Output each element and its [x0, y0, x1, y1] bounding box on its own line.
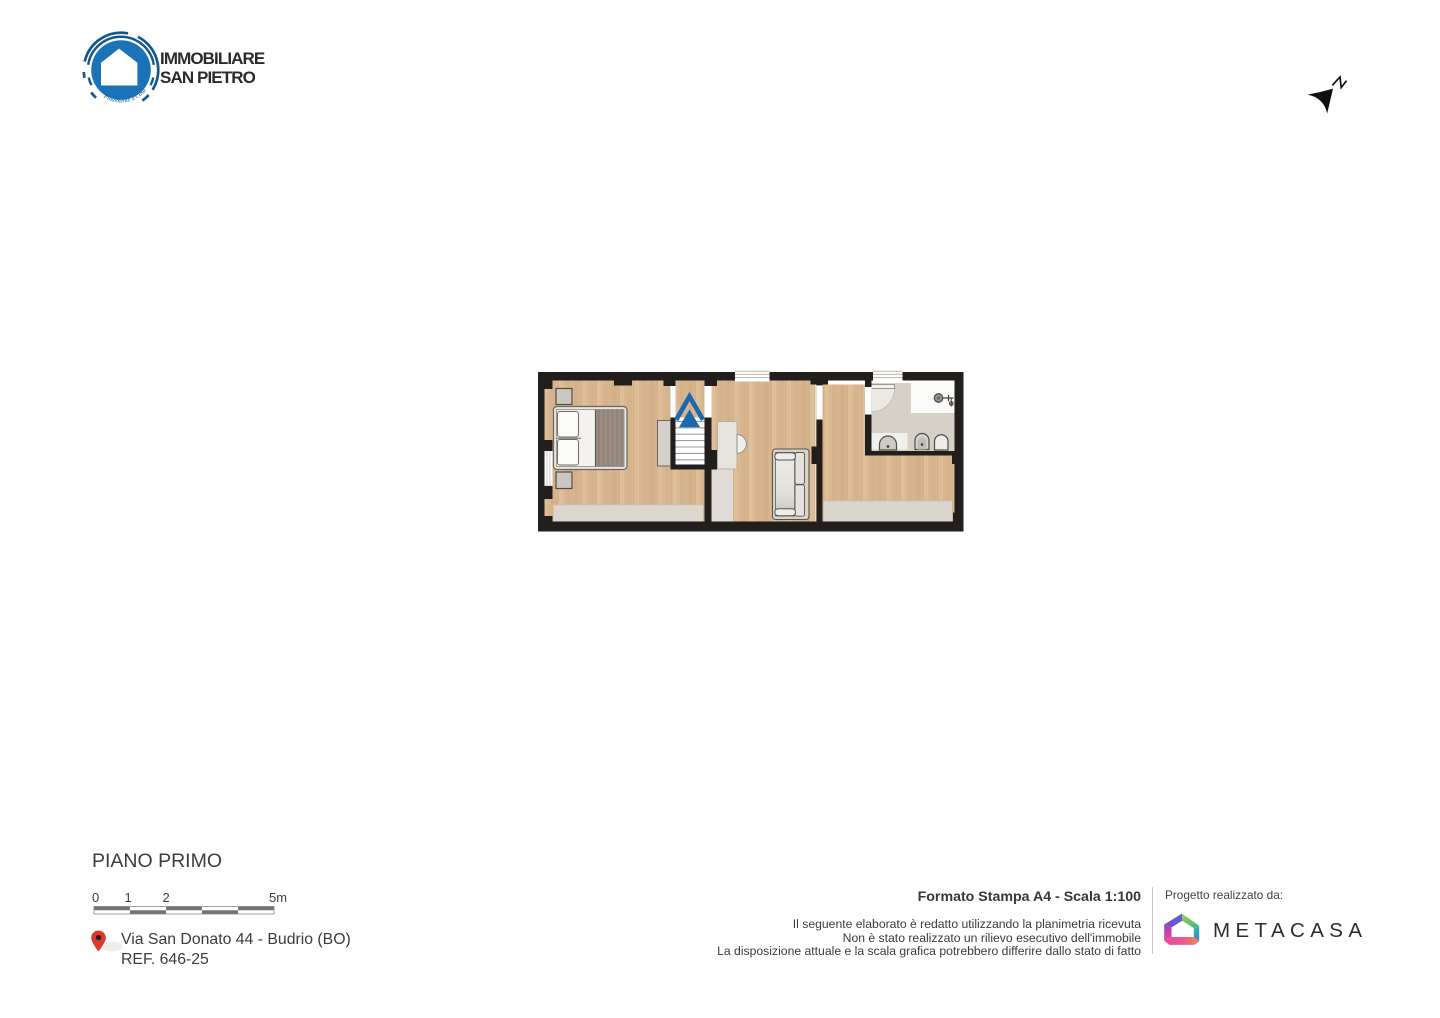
svg-text:2: 2: [163, 890, 170, 905]
svg-text:5m: 5m: [269, 890, 287, 905]
svg-text:1: 1: [125, 890, 132, 905]
svg-text:0: 0: [92, 890, 99, 905]
